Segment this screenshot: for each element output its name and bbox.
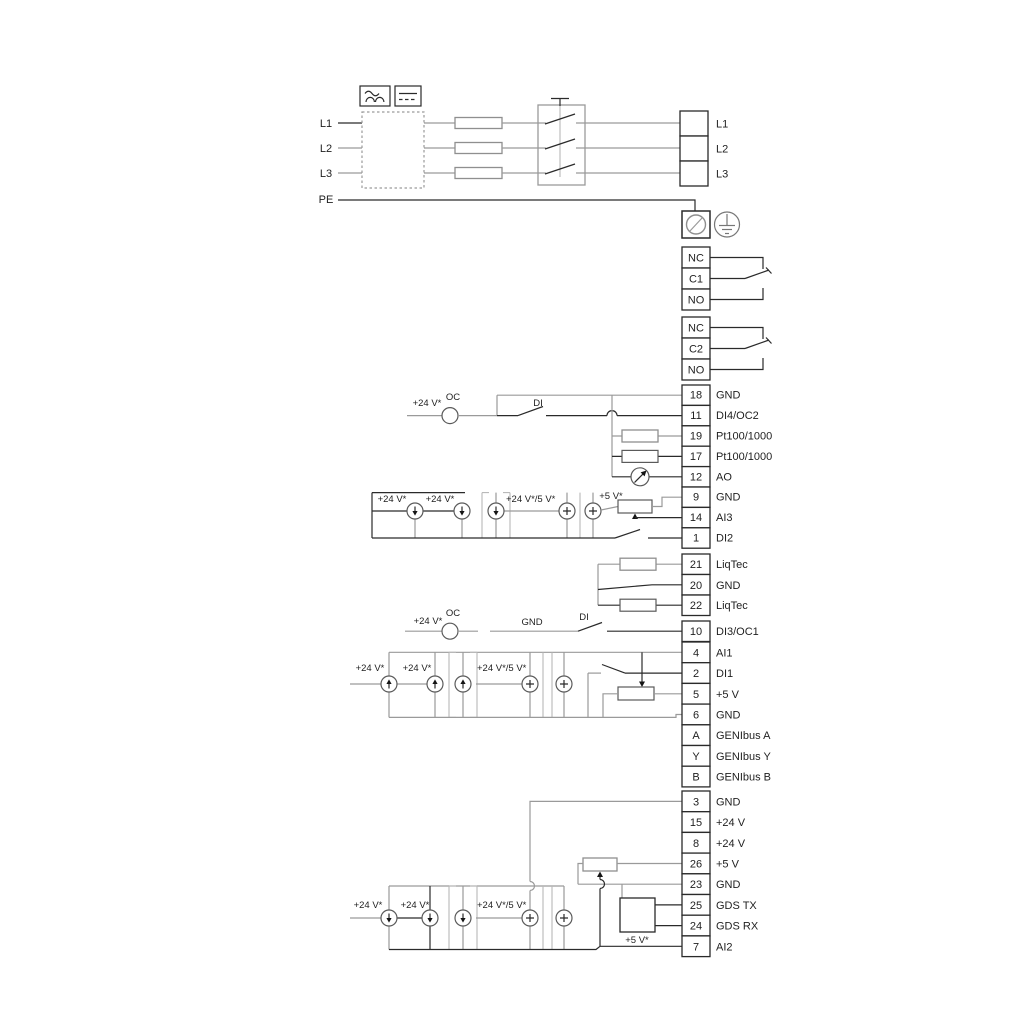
current-source-icon bbox=[407, 503, 423, 519]
terminal-number: B bbox=[692, 772, 699, 784]
v24-label: +24 V* bbox=[403, 663, 432, 674]
terminal-label: AI1 bbox=[716, 647, 733, 659]
terminal-number: 7 bbox=[693, 941, 699, 953]
terminal-label: GND bbox=[716, 390, 741, 402]
terminal-number: 10 bbox=[690, 626, 702, 638]
resistor-pt100 bbox=[622, 430, 658, 442]
terminal-nc: NC bbox=[688, 253, 704, 265]
current-source-icon bbox=[455, 676, 471, 692]
terminal-number: 17 bbox=[690, 451, 702, 463]
v24-5-label: +24 V*/5 V* bbox=[506, 494, 556, 505]
potentiometer bbox=[618, 687, 654, 700]
terminal-number: 25 bbox=[690, 900, 702, 912]
terminal-label: GND bbox=[716, 879, 741, 891]
terminal-label: +5 V bbox=[716, 859, 740, 871]
terminal-number: 6 bbox=[693, 710, 699, 722]
v24-label: +24 V* bbox=[356, 663, 385, 674]
terminal-label: DI2 bbox=[716, 533, 733, 545]
v24-label: +24 V* bbox=[378, 494, 407, 505]
terminal-label: L1 bbox=[716, 119, 728, 131]
terminal-label: GND bbox=[716, 710, 741, 722]
terminal-number: 5 bbox=[693, 689, 699, 701]
v24-label: +24 V* bbox=[354, 900, 383, 911]
terminal-label: L2 bbox=[716, 144, 728, 156]
v5-label: +5 V* bbox=[625, 935, 649, 946]
terminal-c1: C1 bbox=[689, 274, 703, 286]
terminal-number: 11 bbox=[690, 410, 701, 422]
open-collector-icon bbox=[442, 623, 458, 639]
voltage-source-icon bbox=[559, 503, 575, 519]
terminal-label: LiqTec bbox=[716, 600, 748, 612]
current-source-icon bbox=[381, 910, 397, 926]
terminal-label: GND bbox=[716, 580, 741, 592]
voltage-source-icon bbox=[522, 910, 538, 926]
v24-label: +24 V* bbox=[413, 398, 442, 409]
power-terminal-block: L1 L2 L3 bbox=[680, 111, 728, 186]
terminal-no: NO bbox=[688, 295, 705, 307]
terminal-nc: NC bbox=[688, 323, 704, 335]
terminal-label: Pt100/1000 bbox=[716, 431, 772, 443]
liqtec-sensor-resistor bbox=[620, 599, 656, 611]
voltage-source-icon bbox=[556, 910, 572, 926]
fuse-l3 bbox=[455, 168, 502, 179]
resistor-pt100 bbox=[622, 450, 658, 462]
terminal-number: 21 bbox=[690, 559, 702, 571]
terminal-label: +5 V bbox=[716, 689, 740, 701]
terminal-label: GDS TX bbox=[716, 900, 757, 912]
wiring-diagram: L1 L2 L3 PE bbox=[0, 0, 1024, 1024]
meter-icon bbox=[631, 468, 649, 486]
terminal-number: 1 bbox=[693, 533, 699, 545]
oc-label: OC bbox=[446, 608, 460, 619]
v24-label: +24 V* bbox=[401, 900, 430, 911]
terminal-number: 15 bbox=[690, 817, 702, 829]
terminal-label: AI2 bbox=[716, 941, 733, 953]
terminal-number: 23 bbox=[690, 879, 702, 891]
terminal-number: 12 bbox=[690, 471, 702, 483]
terminal-label: DI3/OC1 bbox=[716, 626, 759, 638]
terminal-number: 14 bbox=[690, 512, 702, 524]
voltage-source-icon bbox=[522, 676, 538, 692]
phase-label-pe: PE bbox=[319, 194, 334, 206]
terminal-label: GENIbus B bbox=[716, 772, 771, 784]
current-source-icon bbox=[488, 503, 504, 519]
terminal-number: A bbox=[692, 730, 700, 742]
terminal-number: 18 bbox=[690, 390, 702, 402]
terminal-label: L3 bbox=[716, 169, 728, 181]
terminal-label: +24 V bbox=[716, 838, 746, 850]
terminal-number: 19 bbox=[690, 431, 702, 443]
voltage-source-icon bbox=[585, 503, 601, 519]
terminal-label: DI1 bbox=[716, 668, 733, 680]
phase-label-l1: L1 bbox=[320, 118, 332, 130]
wiring-diagram-page: L1 L2 L3 PE bbox=[0, 0, 1024, 1024]
terminal-label: Pt100/1000 bbox=[716, 451, 772, 463]
screw-terminal-icon bbox=[682, 211, 710, 238]
phase-label-l3: L3 bbox=[320, 168, 332, 180]
di-label: DI bbox=[579, 612, 589, 623]
terminal-label: GENIbus A bbox=[716, 730, 771, 742]
terminal-number: 3 bbox=[693, 796, 699, 808]
gds-sensor-box bbox=[620, 898, 655, 932]
terminal-label: AI3 bbox=[716, 512, 733, 524]
terminal-number: 2 bbox=[693, 668, 699, 680]
terminal-number: 4 bbox=[693, 647, 699, 659]
gnd-label: GND bbox=[521, 617, 542, 628]
terminal-label: AO bbox=[716, 471, 732, 483]
terminal-number: 9 bbox=[693, 492, 699, 504]
background bbox=[0, 0, 1024, 1024]
open-collector-icon bbox=[442, 408, 458, 424]
terminal-number: Y bbox=[692, 751, 700, 763]
terminal-label: GENIbus Y bbox=[716, 751, 771, 763]
current-source-icon bbox=[422, 910, 438, 926]
terminal-label: LiqTec bbox=[716, 559, 748, 571]
fuse-l2 bbox=[455, 143, 502, 154]
terminal-no: NO bbox=[688, 365, 705, 377]
v24-label: +24 V* bbox=[414, 616, 443, 627]
phase-label-l2: L2 bbox=[320, 143, 332, 155]
terminal-label: +24 V bbox=[716, 817, 746, 829]
potentiometer bbox=[618, 500, 652, 513]
terminal-c2: C2 bbox=[689, 344, 703, 356]
terminal-number: 24 bbox=[690, 921, 702, 933]
terminal-number: 8 bbox=[693, 838, 699, 850]
terminal-label: GND bbox=[716, 796, 741, 808]
terminal-label: DI4/OC2 bbox=[716, 410, 759, 422]
v24-5-label: +24 V*/5 V* bbox=[477, 900, 527, 911]
fuse-l1 bbox=[455, 118, 502, 129]
oc-label: OC bbox=[446, 392, 460, 403]
terminal-number: 22 bbox=[690, 600, 702, 612]
current-source-icon bbox=[455, 910, 471, 926]
current-source-icon bbox=[427, 676, 443, 692]
voltage-source-icon bbox=[556, 676, 572, 692]
terminal-number: 20 bbox=[690, 580, 702, 592]
terminal-label: GND bbox=[716, 492, 741, 504]
potentiometer bbox=[583, 858, 617, 871]
v24-label: +24 V* bbox=[426, 494, 455, 505]
current-source-icon bbox=[381, 676, 397, 692]
current-source-icon bbox=[454, 503, 470, 519]
liqtec-sensor-resistor bbox=[620, 558, 656, 570]
terminal-number: 26 bbox=[690, 859, 702, 871]
v24-5-label: +24 V*/5 V* bbox=[477, 663, 527, 674]
terminal-label: GDS RX bbox=[716, 921, 759, 933]
